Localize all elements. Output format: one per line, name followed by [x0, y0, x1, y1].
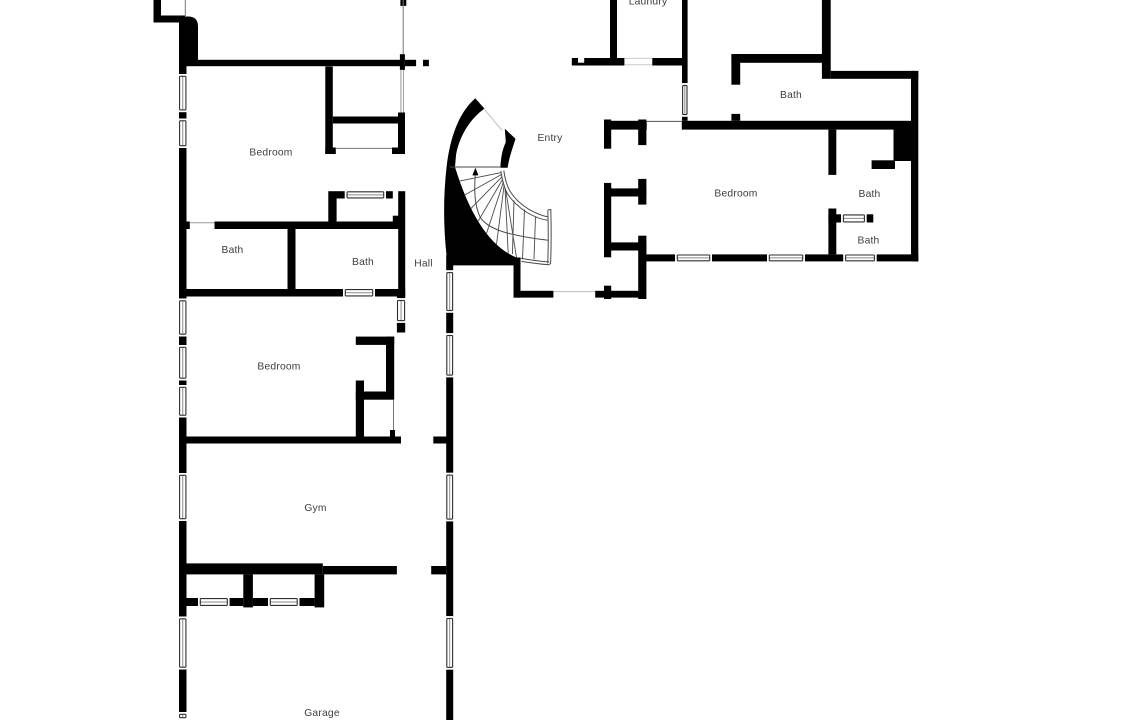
svg-text:Bedroom: Bedroom: [257, 361, 300, 372]
svg-text:Bath: Bath: [222, 245, 244, 256]
svg-text:Bedroom: Bedroom: [249, 147, 292, 158]
svg-text:Garage: Garage: [304, 708, 340, 719]
svg-text:Bath: Bath: [859, 189, 881, 200]
svg-text:Bath: Bath: [352, 257, 374, 268]
svg-text:Gym: Gym: [304, 503, 326, 514]
svg-text:Laundry: Laundry: [629, 0, 668, 7]
svg-text:Hall: Hall: [414, 259, 433, 270]
svg-text:Bedroom: Bedroom: [714, 189, 757, 200]
svg-text:Bath: Bath: [780, 90, 802, 101]
svg-text:Entry: Entry: [537, 133, 563, 144]
svg-text:Bath: Bath: [858, 236, 880, 247]
